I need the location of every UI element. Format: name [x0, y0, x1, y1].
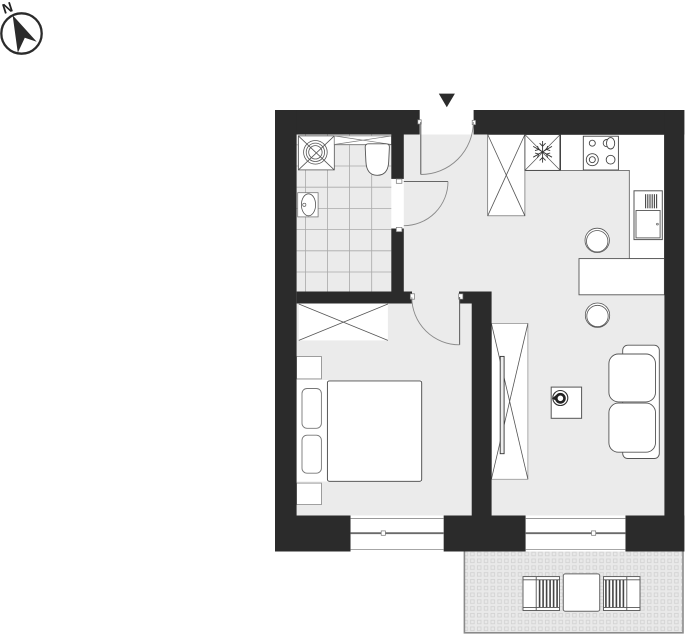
svg-text:N: N — [0, 0, 15, 17]
